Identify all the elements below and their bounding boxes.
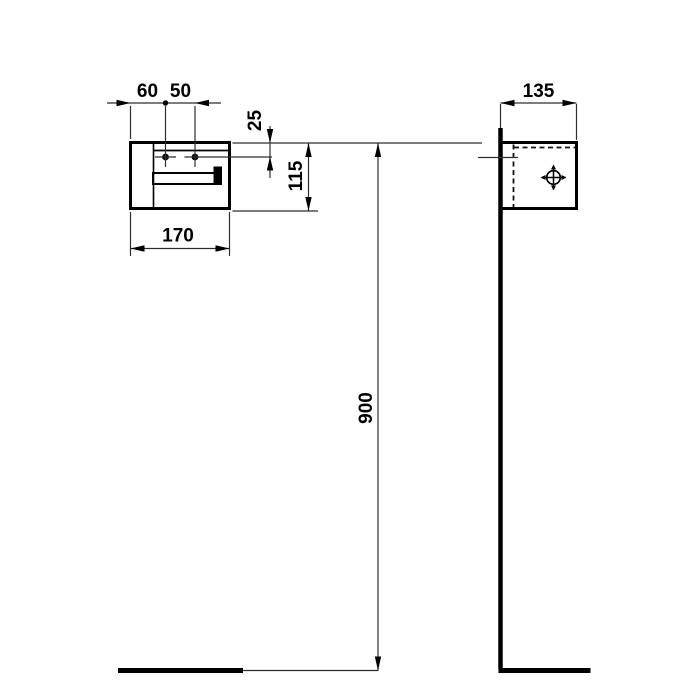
dim-label-50: 50 bbox=[170, 81, 191, 102]
roll-bar-outline bbox=[153, 173, 221, 184]
roll-bar-end-cap bbox=[214, 167, 223, 186]
dim-label-135: 135 bbox=[523, 81, 555, 102]
arrowhead-left bbox=[131, 245, 145, 251]
fixing-point-marker bbox=[541, 165, 567, 191]
dimension-hole-top-offset: 25 bbox=[245, 110, 273, 178]
technical-drawing-canvas: 60 50 25 115 170 bbox=[0, 0, 700, 700]
arrowhead-left bbox=[501, 100, 515, 106]
arrowhead-right bbox=[563, 100, 577, 106]
arrowhead-up bbox=[305, 143, 311, 157]
fixing-point-tick-bottom bbox=[551, 186, 556, 191]
dim-label-170: 170 bbox=[162, 226, 194, 247]
dimension-drawing: 60 50 25 115 170 bbox=[0, 0, 700, 700]
arrowhead-up bbox=[267, 157, 273, 171]
dimension-dot bbox=[163, 100, 168, 105]
arrowhead-down bbox=[375, 657, 381, 671]
fixing-point-tick-left bbox=[541, 175, 546, 180]
side-view bbox=[478, 128, 577, 669]
arrowhead-right bbox=[117, 100, 131, 106]
fixing-point-tick-top bbox=[551, 165, 556, 170]
dim-label-115: 115 bbox=[286, 160, 307, 191]
dimension-front-width: 170 bbox=[131, 212, 230, 256]
dim-label-60: 60 bbox=[137, 81, 158, 102]
fixing-point-tick-right bbox=[562, 175, 567, 180]
dimension-mounting-height: 900 bbox=[356, 143, 381, 671]
dim-label-25: 25 bbox=[245, 110, 266, 132]
arrowhead-left bbox=[195, 100, 209, 106]
dimension-depth: 135 bbox=[501, 81, 577, 140]
front-view bbox=[131, 143, 273, 209]
arrowhead-up bbox=[375, 143, 381, 157]
arrowhead-down bbox=[267, 129, 273, 143]
dim-label-900: 900 bbox=[356, 392, 377, 424]
arrowhead-down bbox=[305, 197, 311, 211]
arrowhead-right bbox=[216, 245, 230, 251]
side-body-outline bbox=[501, 143, 577, 209]
